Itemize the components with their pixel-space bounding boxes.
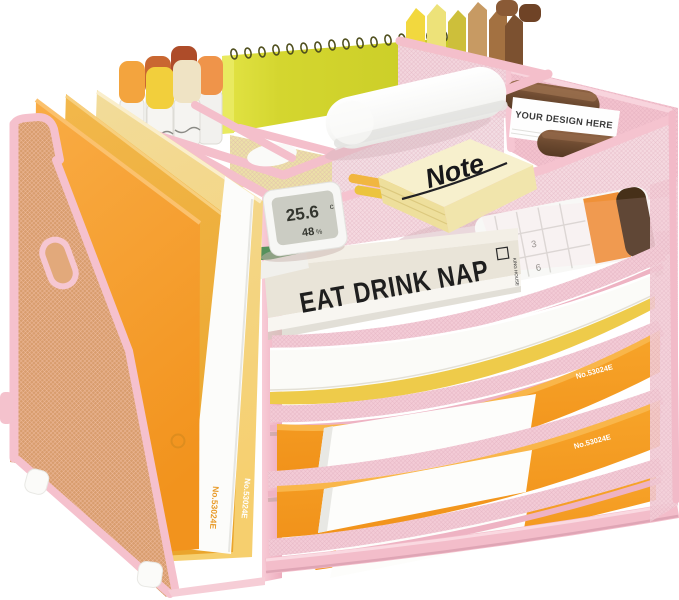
svg-text:48: 48 (301, 226, 315, 240)
svg-text:%: % (316, 229, 323, 237)
